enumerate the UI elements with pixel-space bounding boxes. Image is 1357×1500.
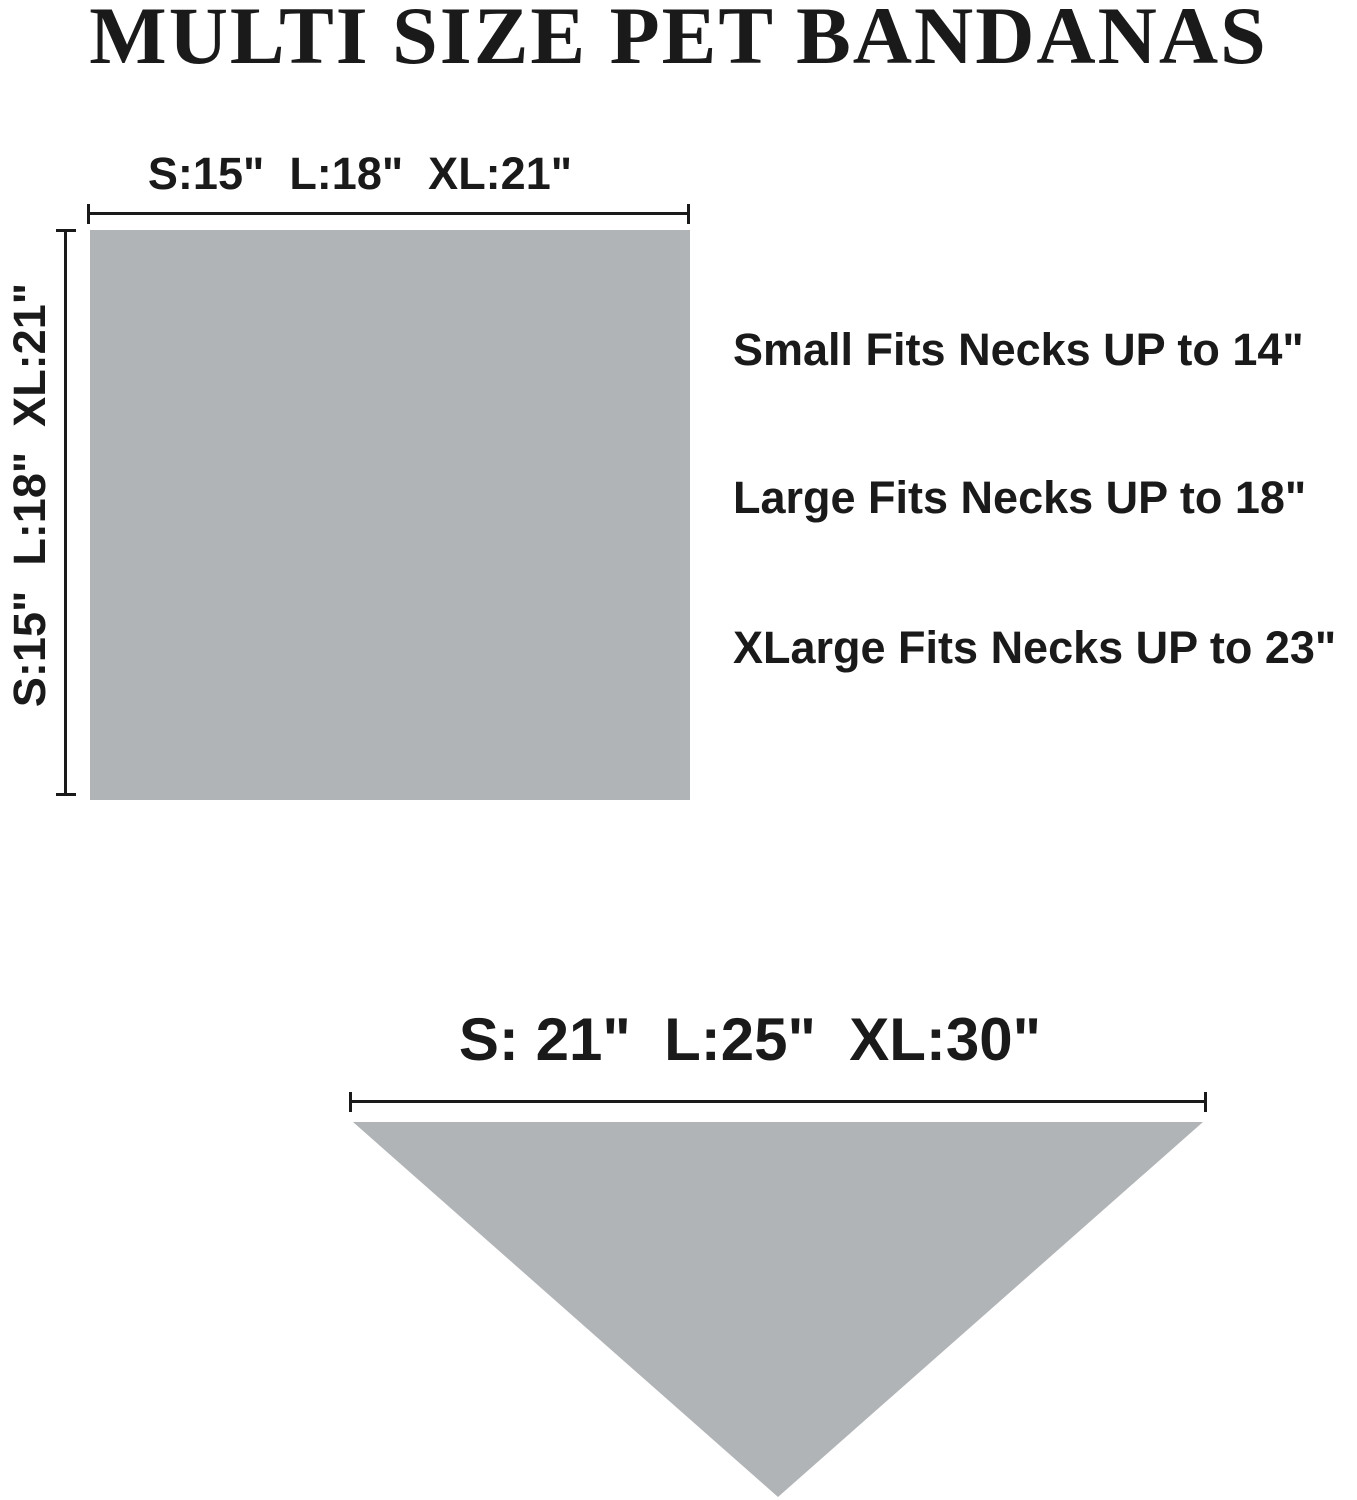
square-height-label: S:15" L:18" XL:21" <box>2 195 58 795</box>
fit-note-small: Small Fits Necks UP to 14" <box>733 323 1304 377</box>
measure-end-tick <box>1204 1092 1207 1112</box>
triangle-width-label: S: 21" L:25" XL:30" <box>340 1005 1160 1075</box>
pet-bandana-size-infographic: MULTI SIZE PET BANDANAS S:15" L:18" XL:2… <box>0 0 1357 1500</box>
square-height-measure-line <box>64 229 67 796</box>
triangle-bandana-shape <box>353 1122 1203 1497</box>
measure-end-tick <box>349 1092 352 1112</box>
fit-note-xlarge: XLarge Fits Necks UP to 23" <box>733 621 1336 675</box>
square-width-label: S:15" L:18" XL:21" <box>60 148 660 200</box>
fit-note-large: Large Fits Necks UP to 18" <box>733 471 1306 525</box>
measure-end-tick <box>56 793 76 796</box>
measure-end-tick <box>87 204 90 224</box>
page-title: MULTI SIZE PET BANDANAS <box>0 0 1357 86</box>
triangle-width-measure-line <box>349 1100 1207 1103</box>
square-bandana-shape <box>90 230 690 800</box>
measure-end-tick <box>687 204 690 224</box>
square-width-measure-line <box>87 212 690 215</box>
measure-end-tick <box>56 229 76 232</box>
